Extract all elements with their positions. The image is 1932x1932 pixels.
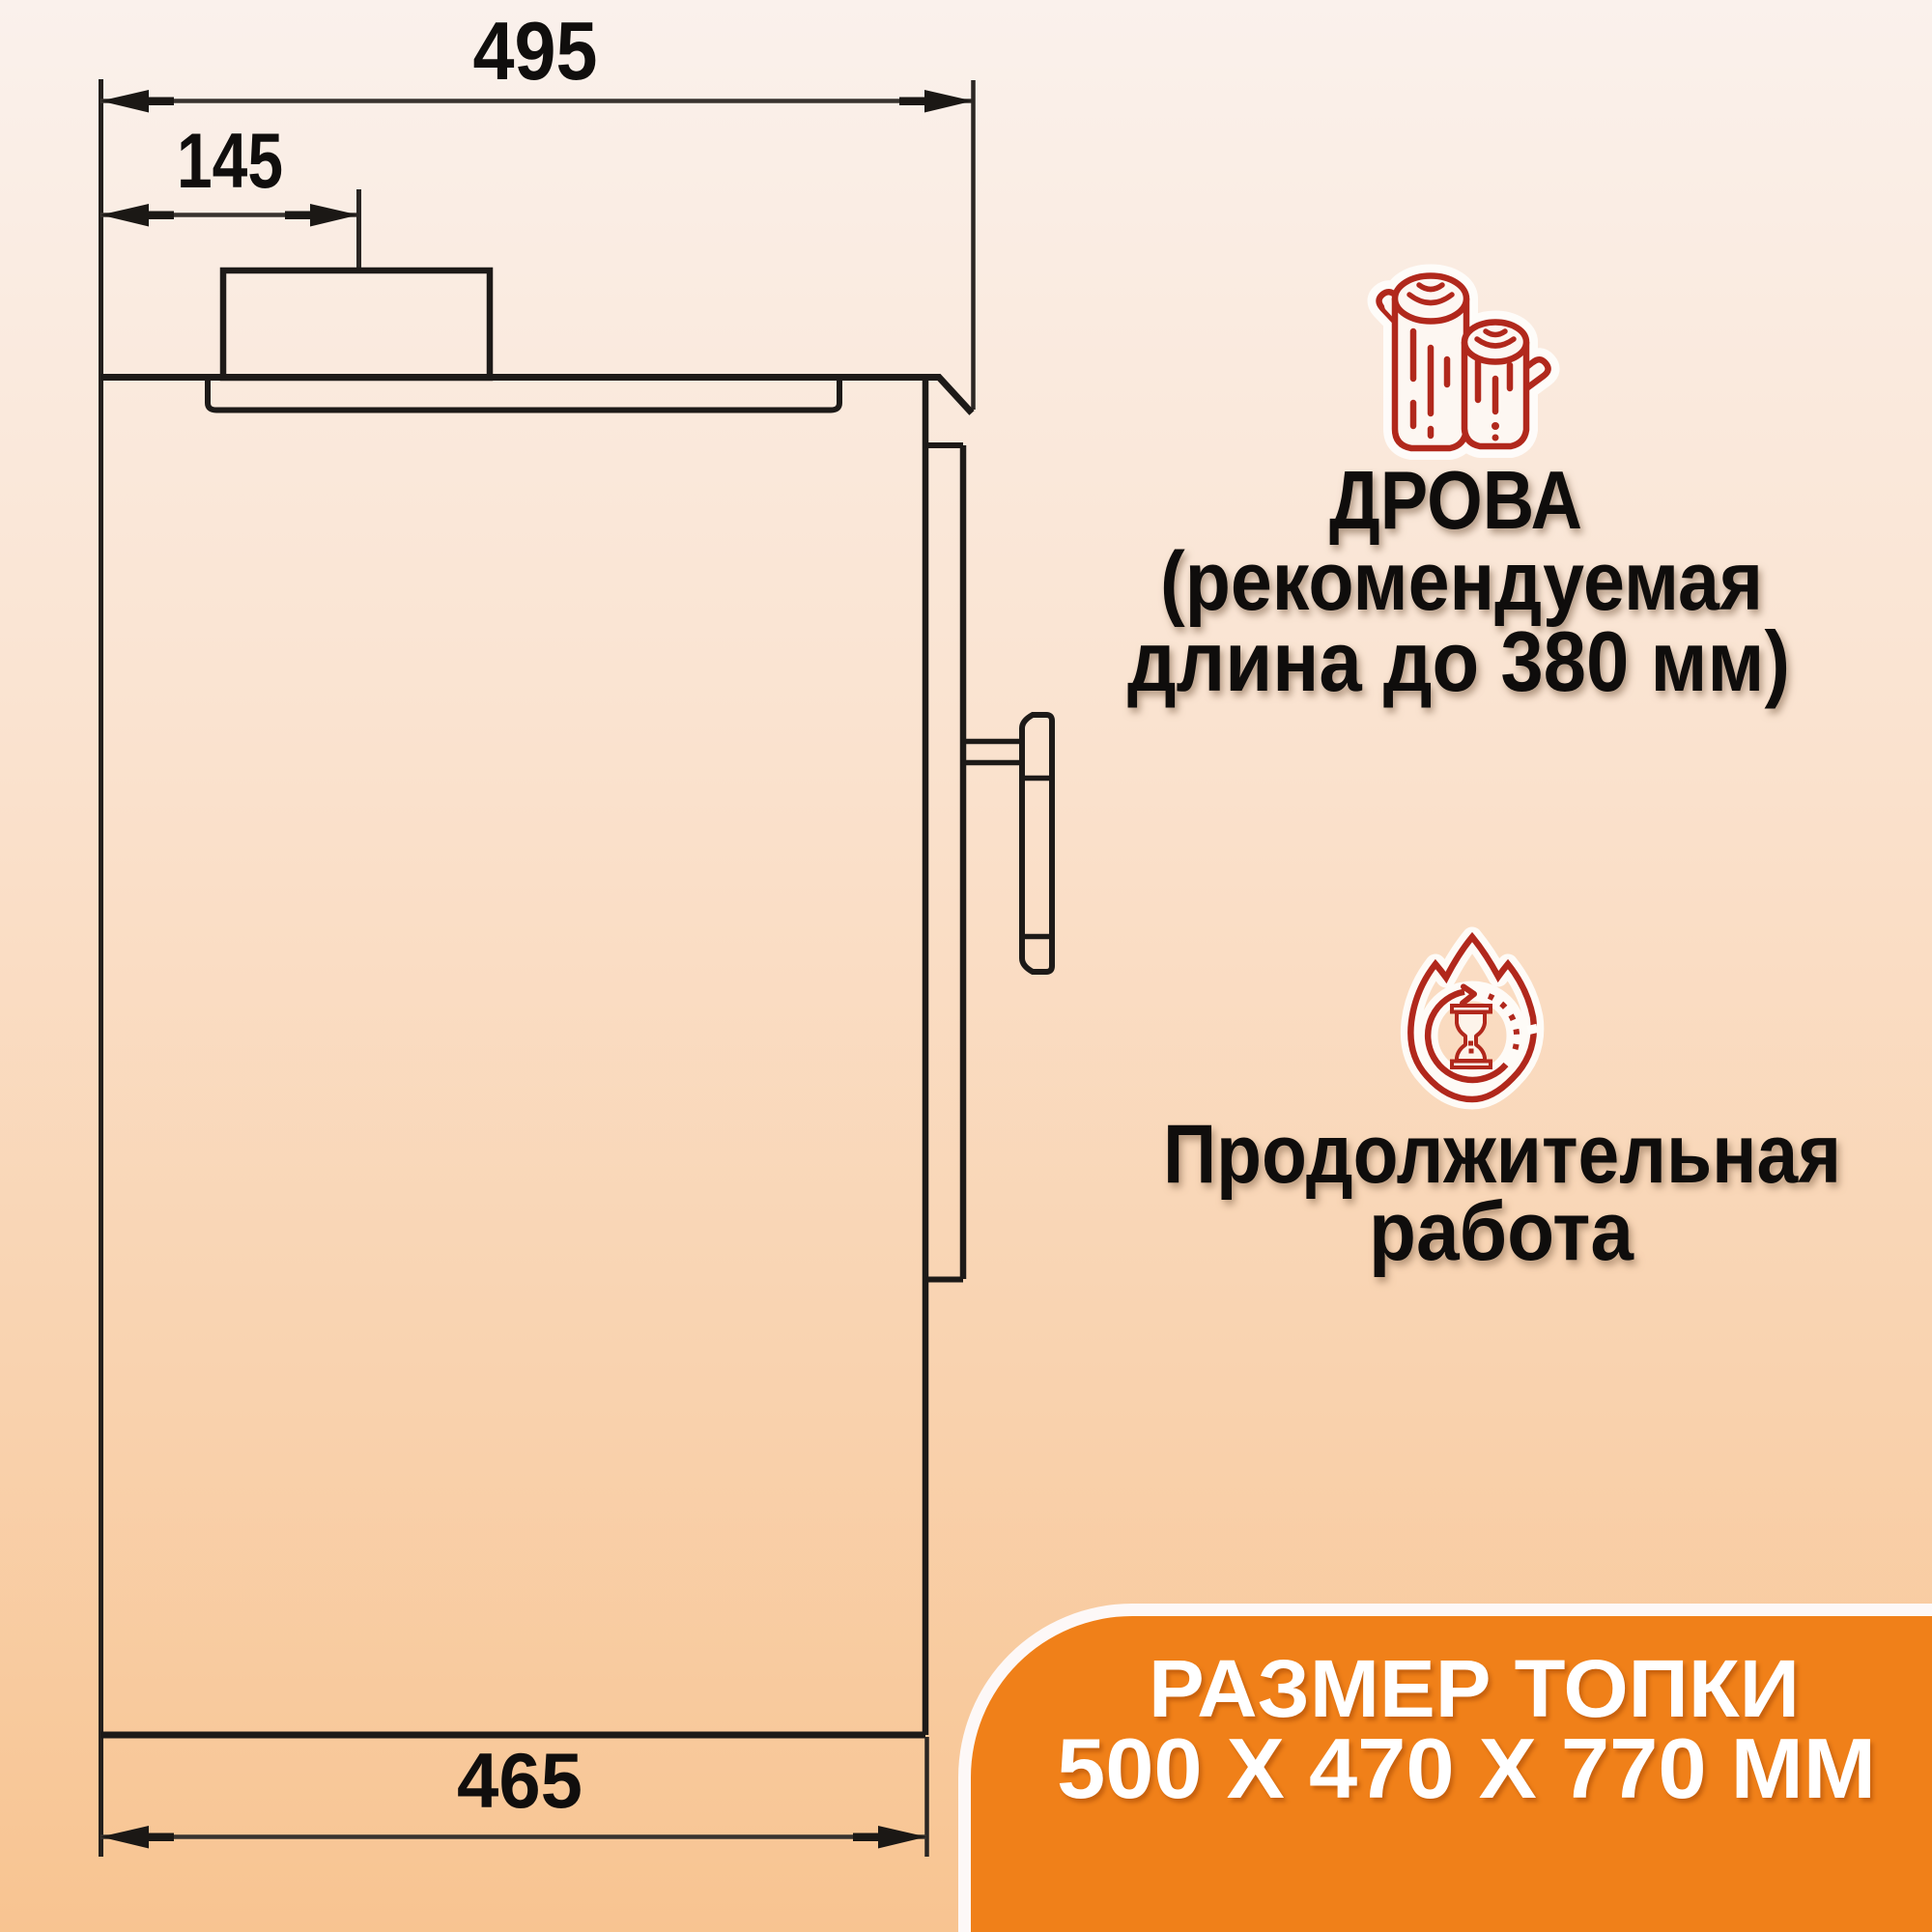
svg-text:500 Х 470 Х 770 ММ: 500 Х 470 Х 770 ММ bbox=[1057, 1720, 1876, 1816]
svg-text:495: 495 bbox=[473, 6, 598, 98]
svg-text:работа: работа bbox=[1369, 1185, 1634, 1278]
svg-text:145: 145 bbox=[177, 118, 283, 205]
svg-text:ДРОВА: ДРОВА bbox=[1329, 455, 1582, 547]
svg-text:длина до 380 мм): длина до 380 мм) bbox=[1127, 613, 1790, 709]
svg-text:465: 465 bbox=[457, 1738, 582, 1825]
